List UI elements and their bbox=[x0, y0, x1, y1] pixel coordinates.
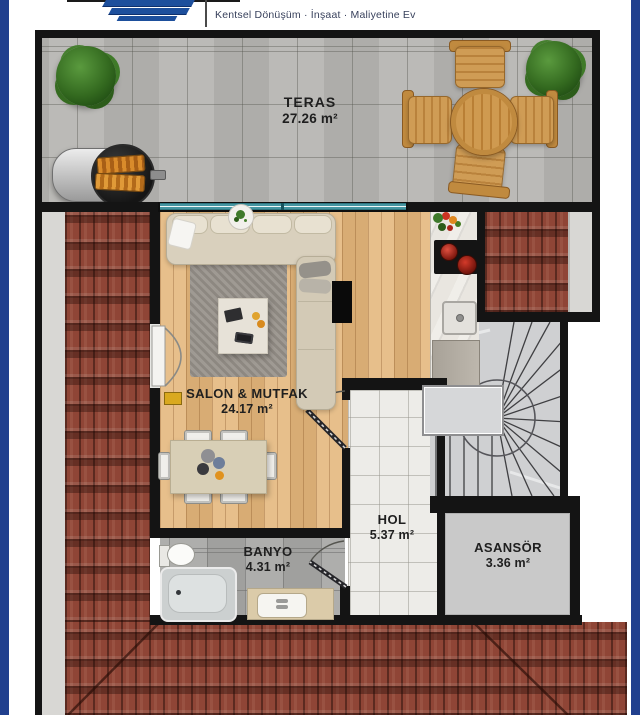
wall bbox=[477, 312, 600, 322]
logo-divider bbox=[205, 0, 207, 27]
vanity-sink bbox=[257, 593, 307, 618]
page-border-left bbox=[0, 0, 9, 715]
wall bbox=[35, 30, 600, 38]
tv bbox=[332, 281, 352, 323]
table-plant bbox=[236, 210, 245, 219]
room-area-teras: 27.26 m² bbox=[220, 111, 400, 127]
room-label-banyo: BANYO 4.31 m² bbox=[198, 544, 338, 575]
laptop bbox=[224, 307, 243, 322]
wall bbox=[35, 30, 42, 715]
coffee-table bbox=[218, 298, 268, 354]
room-label-asansor: ASANSÖR 3.36 m² bbox=[448, 540, 568, 571]
room-area-salon: 24.17 m² bbox=[167, 402, 327, 417]
pillow bbox=[299, 278, 332, 294]
logo-bar-icon bbox=[117, 16, 178, 21]
terrace-floor: TERAS 27.26 m² bbox=[42, 38, 592, 202]
roof-gutter-right bbox=[568, 212, 594, 312]
window-divider bbox=[281, 203, 284, 210]
page-border-right bbox=[631, 0, 640, 715]
cooking-pot bbox=[457, 255, 477, 275]
room-label-salon: SALON & MUTFAK 24.17 m² bbox=[167, 386, 327, 417]
pillow bbox=[298, 260, 332, 279]
wall bbox=[430, 496, 580, 513]
faucet-icon bbox=[276, 599, 288, 603]
roof-hip-lines bbox=[42, 618, 627, 715]
kitchen-counter bbox=[430, 212, 479, 390]
terrace-chair bbox=[408, 96, 452, 144]
cooking-pot bbox=[440, 243, 458, 261]
room-area-banyo: 4.31 m² bbox=[198, 560, 338, 575]
vegetables-decor bbox=[433, 213, 443, 223]
floor-plan-page: Kentsel Dönüşüm · İnşaat · Maliyetine Ev… bbox=[0, 0, 640, 715]
plant bbox=[526, 41, 582, 97]
terrace-round-table bbox=[451, 89, 517, 155]
toilet bbox=[167, 543, 195, 566]
grill-handle bbox=[150, 170, 166, 180]
terrace-chair bbox=[455, 46, 505, 88]
drain bbox=[176, 590, 181, 595]
dining-table bbox=[170, 440, 267, 494]
room-area-asansor: 3.36 m² bbox=[448, 556, 568, 571]
sofa-cushion bbox=[252, 215, 292, 234]
wall bbox=[437, 432, 445, 625]
grill-food bbox=[95, 173, 146, 193]
plant bbox=[56, 46, 116, 106]
side-table bbox=[228, 204, 254, 230]
drink bbox=[257, 320, 265, 328]
stair-landing bbox=[422, 385, 504, 436]
wall bbox=[560, 322, 568, 496]
room-name-asansor: ASANSÖR bbox=[448, 540, 568, 556]
grill-food bbox=[96, 154, 145, 174]
drink bbox=[252, 312, 260, 320]
room-name-salon: SALON & MUTFAK bbox=[167, 386, 327, 402]
logo-bar-icon bbox=[108, 8, 190, 15]
sofa-cushion bbox=[294, 215, 332, 234]
room-name-hol: HOL bbox=[348, 512, 436, 528]
roof-right-patch bbox=[485, 212, 570, 312]
vanity-counter bbox=[247, 588, 334, 620]
wall bbox=[477, 202, 485, 322]
plate bbox=[213, 457, 225, 469]
faucet-icon bbox=[456, 314, 464, 322]
room-label-teras: TERAS 27.26 m² bbox=[220, 94, 400, 128]
wall bbox=[570, 513, 580, 625]
room-name-banyo: BANYO bbox=[198, 544, 338, 560]
logo-bar-icon bbox=[102, 0, 195, 7]
kitchen-sink bbox=[442, 301, 477, 335]
tray bbox=[234, 332, 253, 344]
food-bowl bbox=[215, 471, 224, 480]
roof-left bbox=[65, 212, 150, 622]
room-label-hol: HOL 5.37 m² bbox=[348, 512, 436, 543]
wall bbox=[592, 30, 600, 322]
plate bbox=[197, 463, 209, 475]
bathtub bbox=[160, 567, 237, 622]
cushion-seam bbox=[298, 349, 334, 350]
room-area-hol: 5.37 m² bbox=[348, 528, 436, 543]
cushion-seam bbox=[298, 301, 334, 302]
brand-tagline: Kentsel Dönüşüm · İnşaat · Maliyetine Ev bbox=[215, 9, 416, 21]
room-name-teras: TERAS bbox=[220, 94, 400, 111]
